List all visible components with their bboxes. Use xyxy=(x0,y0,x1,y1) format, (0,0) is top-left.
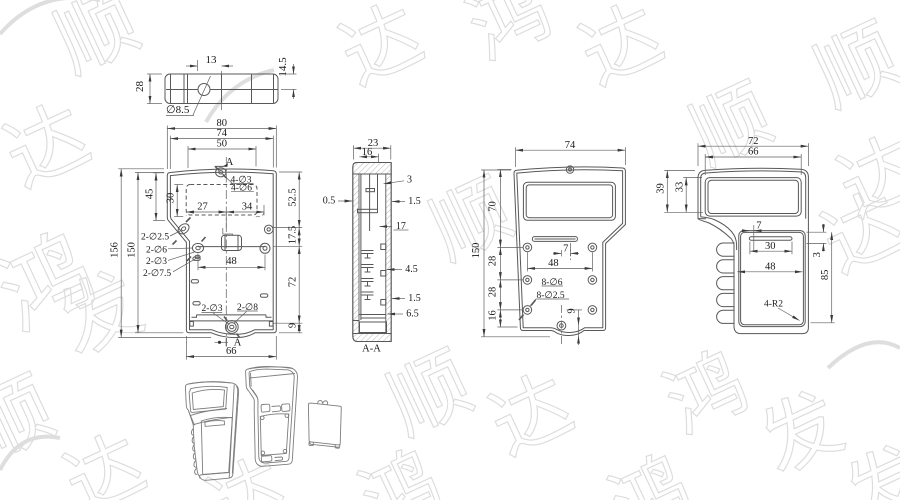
svg-text:2-∅7.5: 2-∅7.5 xyxy=(143,268,171,279)
svg-text:30: 30 xyxy=(765,241,776,252)
svg-text:74: 74 xyxy=(217,128,228,139)
svg-text:30: 30 xyxy=(166,193,177,204)
svg-text:鸿: 鸿 xyxy=(653,337,760,449)
svg-text:顺: 顺 xyxy=(43,0,153,90)
svg-text:7: 7 xyxy=(756,221,761,232)
svg-text:4-R2: 4-R2 xyxy=(764,300,783,310)
svg-text:70: 70 xyxy=(488,201,499,212)
svg-text:4-∅6: 4-∅6 xyxy=(231,182,252,193)
svg-text:2-∅2.5: 2-∅2.5 xyxy=(141,232,169,243)
svg-text:鸿: 鸿 xyxy=(349,438,453,500)
svg-text:28: 28 xyxy=(488,287,499,298)
svg-text:1.5: 1.5 xyxy=(408,293,421,304)
svg-text:达: 达 xyxy=(568,0,675,101)
svg-text:16: 16 xyxy=(362,147,373,158)
svg-text:52.5: 52.5 xyxy=(288,188,299,206)
svg-text:27: 27 xyxy=(197,202,208,213)
svg-text:28: 28 xyxy=(488,256,499,267)
svg-text:7: 7 xyxy=(563,243,568,254)
svg-text:33: 33 xyxy=(675,182,686,193)
svg-text:0.5: 0.5 xyxy=(323,196,336,207)
svg-text:6.5: 6.5 xyxy=(406,308,419,319)
svg-text:50: 50 xyxy=(217,139,228,150)
svg-text:150: 150 xyxy=(471,243,482,259)
svg-text:48: 48 xyxy=(226,256,237,267)
svg-text:2-∅3: 2-∅3 xyxy=(146,256,167,267)
svg-text:4.5: 4.5 xyxy=(405,264,418,275)
svg-text:A-A: A-A xyxy=(362,344,381,355)
svg-text:48: 48 xyxy=(548,258,559,269)
svg-text:17.5: 17.5 xyxy=(288,226,299,244)
svg-text:A: A xyxy=(234,338,242,349)
svg-text:达: 达 xyxy=(328,0,435,101)
svg-text:1.5: 1.5 xyxy=(408,196,421,207)
svg-text:72: 72 xyxy=(748,136,759,147)
svg-text:85: 85 xyxy=(820,270,831,281)
svg-text:13: 13 xyxy=(206,54,218,66)
svg-text:48: 48 xyxy=(765,261,776,272)
svg-text:∅8.5: ∅8.5 xyxy=(166,104,190,116)
svg-text:A: A xyxy=(226,157,234,168)
svg-text:72: 72 xyxy=(288,277,299,288)
svg-text:3: 3 xyxy=(812,252,823,257)
svg-text:顺: 顺 xyxy=(418,164,525,276)
svg-text:达: 达 xyxy=(53,421,157,500)
svg-text:34: 34 xyxy=(242,202,253,213)
svg-text:45: 45 xyxy=(144,189,155,200)
svg-text:9: 9 xyxy=(566,308,577,313)
svg-text:顺: 顺 xyxy=(803,11,900,125)
svg-text:顺: 顺 xyxy=(678,69,785,181)
svg-text:74: 74 xyxy=(565,140,576,151)
svg-text:顺: 顺 xyxy=(376,339,486,453)
svg-text:16: 16 xyxy=(488,310,499,321)
svg-text:达: 达 xyxy=(478,359,585,471)
svg-text:9: 9 xyxy=(288,323,299,328)
svg-text:150: 150 xyxy=(126,242,137,258)
svg-text:156: 156 xyxy=(110,242,121,258)
svg-text:14.5: 14.5 xyxy=(277,57,289,77)
svg-text:鸿: 鸿 xyxy=(599,443,703,500)
svg-text:3: 3 xyxy=(407,175,412,186)
svg-text:达: 达 xyxy=(0,91,102,205)
svg-text:39: 39 xyxy=(656,183,667,194)
svg-text:鸿: 鸿 xyxy=(456,0,563,75)
svg-text:2-∅6: 2-∅6 xyxy=(146,244,167,255)
svg-text:28: 28 xyxy=(134,81,146,93)
svg-text:66: 66 xyxy=(748,147,759,158)
